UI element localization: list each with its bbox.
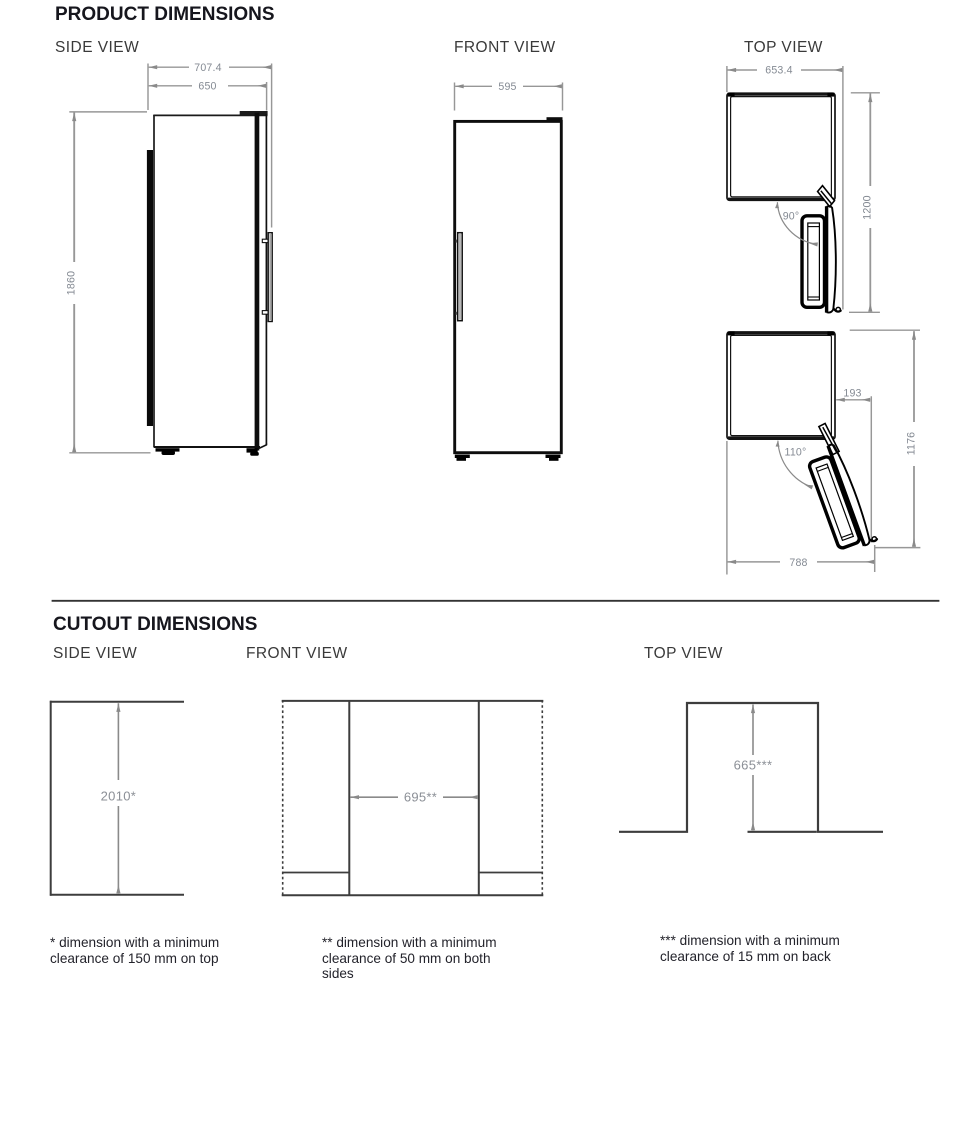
svg-text:653.4: 653.4 <box>765 65 793 77</box>
svg-text:2010*: 2010* <box>101 789 136 804</box>
svg-text:595: 595 <box>498 81 516 93</box>
svg-text:1200: 1200 <box>862 195 874 219</box>
svg-text:788: 788 <box>789 557 807 569</box>
svg-text:695**: 695** <box>404 790 437 805</box>
svg-text:90°: 90° <box>783 211 800 223</box>
svg-text:707.4: 707.4 <box>194 62 222 74</box>
svg-text:193: 193 <box>843 388 861 400</box>
svg-text:665***: 665*** <box>734 758 773 773</box>
svg-text:1176: 1176 <box>905 432 917 456</box>
svg-text:1860: 1860 <box>66 271 78 295</box>
svg-text:110°: 110° <box>785 447 807 459</box>
svg-text:650: 650 <box>198 81 216 93</box>
